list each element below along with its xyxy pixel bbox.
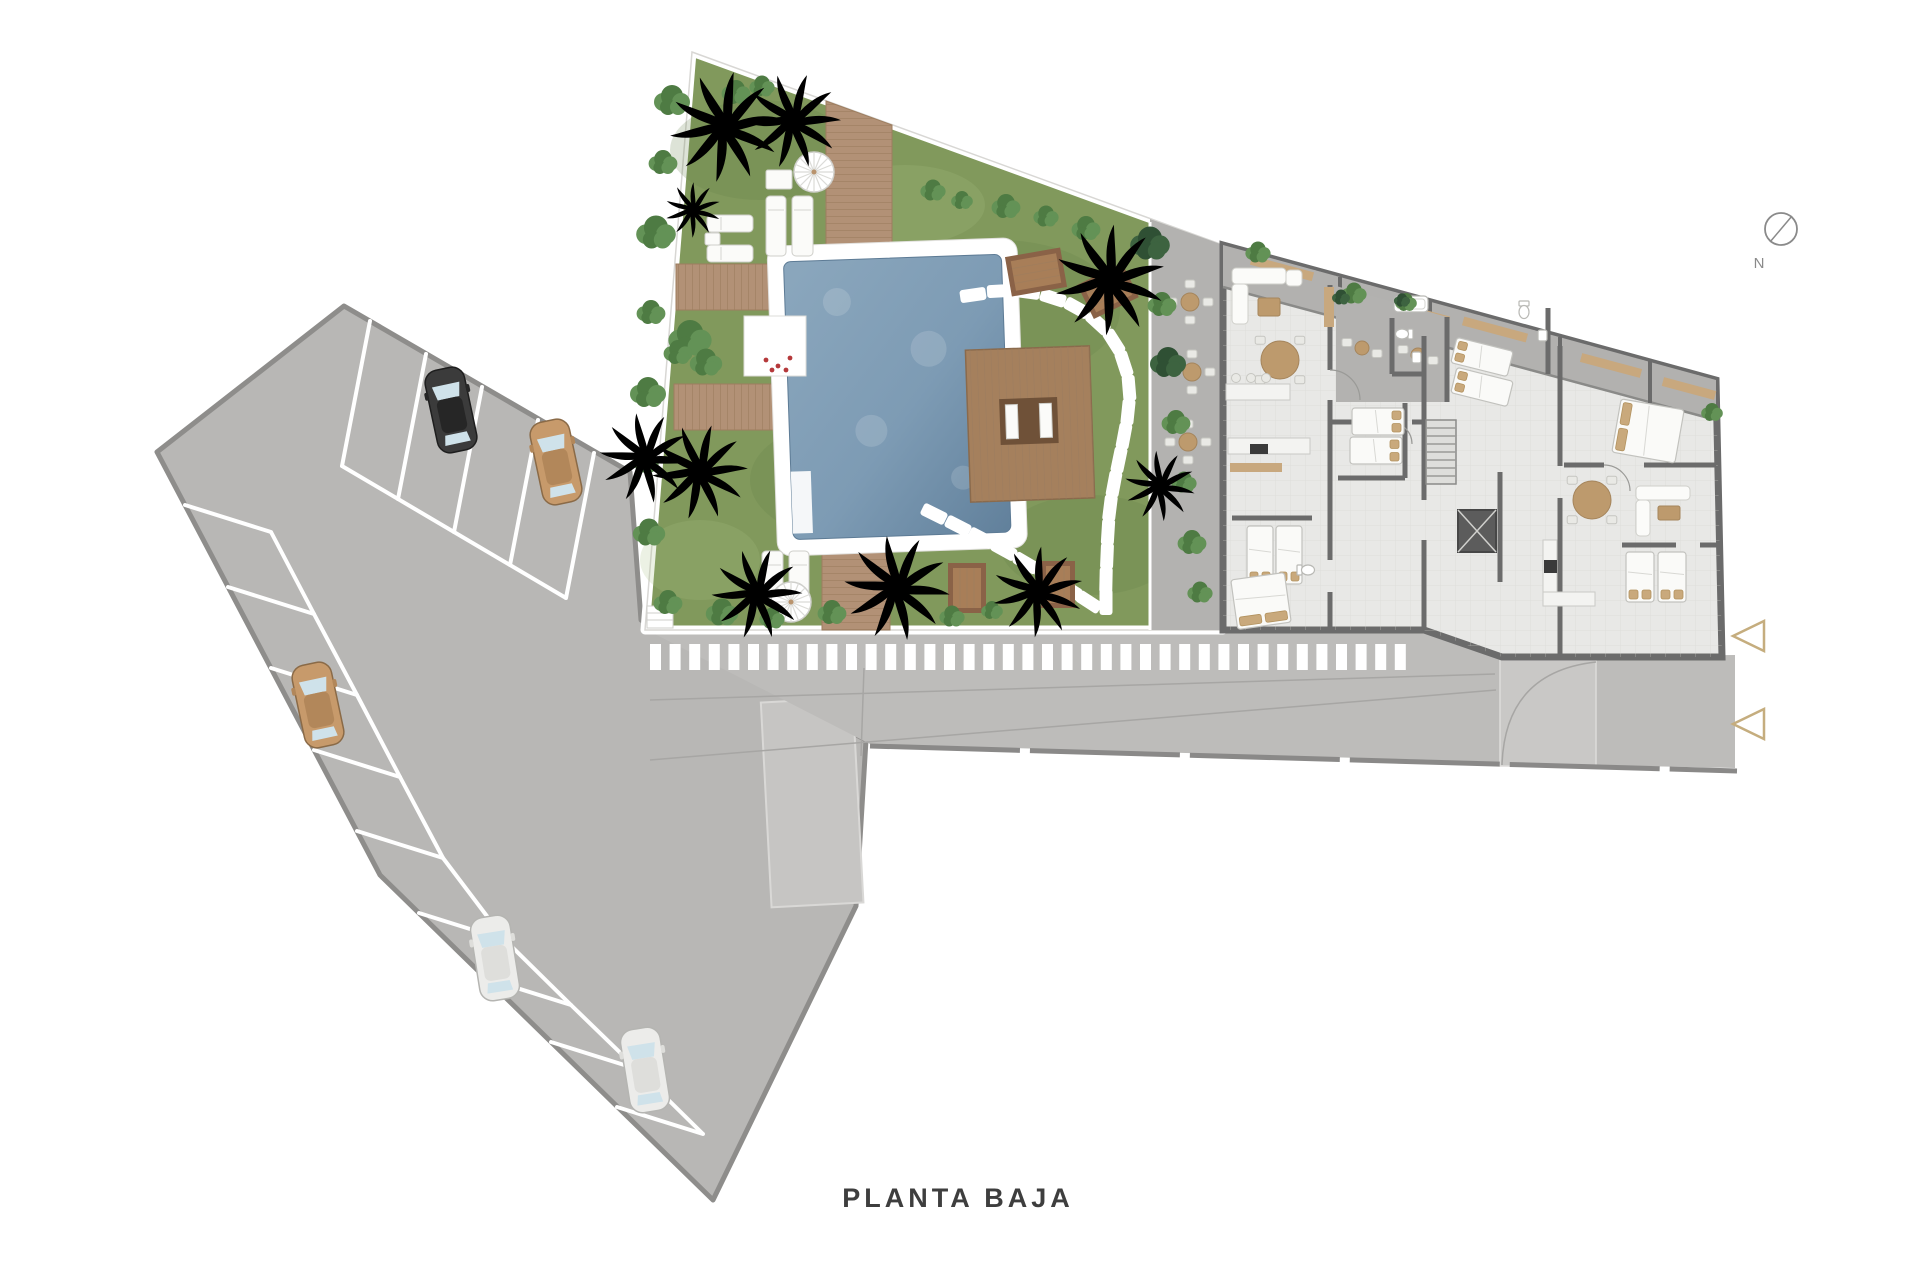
crosswalk-dash bbox=[1297, 644, 1308, 670]
crosswalk-dash bbox=[983, 644, 994, 670]
crosswalk-dash bbox=[1140, 644, 1151, 670]
shrub-tuft bbox=[1148, 242, 1166, 260]
chair bbox=[1183, 456, 1193, 464]
bed-pillow bbox=[1674, 590, 1683, 599]
crosswalk-dash bbox=[1395, 644, 1406, 670]
stepping-stone bbox=[987, 284, 1014, 298]
shrub-tuft bbox=[830, 611, 843, 624]
bed-pillow bbox=[1390, 440, 1399, 449]
toilet-bowl bbox=[1396, 329, 1409, 339]
shrub-tuft bbox=[1004, 205, 1017, 218]
planter-flower bbox=[788, 356, 793, 361]
shrub-tuft bbox=[991, 609, 1001, 619]
apartment-building bbox=[1223, 245, 1722, 657]
lounger-base bbox=[707, 245, 753, 262]
picnic-table bbox=[948, 563, 986, 613]
chair bbox=[1342, 339, 1352, 347]
toilet-bowl bbox=[1302, 565, 1315, 575]
bed-pillow bbox=[1457, 341, 1468, 351]
planter-flower bbox=[764, 358, 769, 363]
shrub-tuft bbox=[1084, 227, 1097, 240]
shrub-tuft bbox=[1257, 251, 1268, 262]
bed bbox=[1612, 399, 1684, 463]
sofa bbox=[1286, 270, 1302, 286]
sun-lounger bbox=[707, 245, 753, 262]
crosswalk-dash bbox=[905, 644, 916, 670]
compass-north-label: N bbox=[1754, 255, 1765, 272]
lounger-base bbox=[792, 196, 813, 256]
bed bbox=[1658, 552, 1686, 602]
crosswalk-dash bbox=[1375, 644, 1386, 670]
crosswalk-dash bbox=[1199, 644, 1210, 670]
kitchen-stool bbox=[1232, 374, 1241, 383]
floor-plan-canvas: N PLANTA BAJA bbox=[0, 0, 1920, 1280]
bed-pillow bbox=[1642, 590, 1651, 599]
chair bbox=[1428, 356, 1438, 364]
crosswalk-dash bbox=[1081, 644, 1092, 670]
kitchen-counter bbox=[1543, 592, 1595, 606]
chair bbox=[1255, 336, 1265, 344]
crosswalk-dash bbox=[1042, 644, 1053, 670]
entrance-arrows bbox=[1733, 621, 1764, 739]
chair bbox=[1187, 350, 1197, 358]
kitchen-appliance bbox=[1250, 444, 1268, 454]
parasol bbox=[794, 152, 834, 192]
crosswalk-dash bbox=[924, 644, 935, 670]
round-table bbox=[1573, 481, 1611, 519]
shrub-tuft bbox=[704, 361, 718, 375]
crosswalk-dash bbox=[964, 644, 975, 670]
entrance-arrow bbox=[1733, 709, 1764, 739]
stepping-stone bbox=[1100, 589, 1113, 615]
pergola-bench-right bbox=[1039, 403, 1052, 437]
chair bbox=[1607, 516, 1617, 524]
crosswalk-dash bbox=[1062, 644, 1073, 670]
crosswalk-dash bbox=[1160, 644, 1171, 670]
crosswalk-dash bbox=[1022, 644, 1033, 670]
shrub-tuft bbox=[661, 161, 674, 174]
shrub bbox=[636, 216, 676, 249]
shrub-tuft bbox=[649, 311, 662, 324]
sun-lounger bbox=[766, 196, 786, 256]
crosswalk-dash bbox=[1316, 644, 1327, 670]
bed bbox=[1352, 408, 1404, 435]
crosswalk-dash bbox=[650, 644, 661, 670]
chair bbox=[1203, 298, 1213, 306]
crosswalk-dash bbox=[846, 644, 857, 670]
crosswalk-dash bbox=[1238, 644, 1249, 670]
shrub-tuft bbox=[1401, 300, 1408, 307]
shrub-tuft bbox=[654, 231, 672, 249]
planter-flower bbox=[784, 368, 789, 373]
bed bbox=[1626, 552, 1654, 602]
bed bbox=[1231, 572, 1291, 629]
stepping-stone bbox=[1120, 398, 1136, 425]
shrub-tuft bbox=[646, 391, 662, 407]
crosswalk-dash bbox=[728, 644, 739, 670]
pergola bbox=[965, 346, 1094, 502]
sun-lounger bbox=[792, 196, 813, 256]
table-set bbox=[1567, 476, 1617, 524]
chair bbox=[1607, 476, 1617, 484]
sofa bbox=[1232, 268, 1286, 284]
sofa bbox=[1232, 284, 1248, 324]
wood-sideboard bbox=[1324, 287, 1334, 327]
bathroom-sink bbox=[1538, 330, 1547, 341]
crosswalk-dash bbox=[768, 644, 779, 670]
shrub-tuft bbox=[666, 601, 679, 614]
chair bbox=[1185, 280, 1195, 288]
site-plan-page: N PLANTA BAJA bbox=[0, 0, 1920, 1280]
bed-pillow bbox=[1661, 590, 1670, 599]
crosswalk-dash bbox=[1356, 644, 1367, 670]
bed-pillow bbox=[1392, 411, 1401, 420]
kitchen-stool bbox=[1247, 374, 1256, 383]
chair bbox=[1398, 346, 1408, 354]
stepping-stone bbox=[1101, 519, 1116, 546]
round-table bbox=[1355, 341, 1369, 355]
chair bbox=[1372, 349, 1382, 357]
crosswalk-dash bbox=[1218, 644, 1229, 670]
shrub-tuft bbox=[1199, 591, 1210, 602]
shrub-tuft bbox=[961, 199, 971, 209]
crosswalk-dash bbox=[709, 644, 720, 670]
shrub-tuft bbox=[647, 531, 661, 545]
sofa bbox=[1636, 486, 1690, 500]
pool-steps bbox=[791, 471, 813, 534]
kitchen-appliance bbox=[1544, 560, 1557, 573]
crosswalk-dash bbox=[1336, 644, 1347, 670]
chair bbox=[1295, 336, 1305, 344]
pergola-bench-left bbox=[1005, 404, 1018, 438]
wood-sideboard bbox=[1230, 463, 1282, 472]
parasol-glyph bbox=[794, 152, 834, 192]
plan-title: PLANTA BAJA bbox=[842, 1183, 1074, 1213]
bathroom-sink bbox=[1412, 352, 1421, 363]
compass-rose: N bbox=[1754, 213, 1797, 272]
side-table bbox=[705, 233, 720, 245]
kitchen-counter bbox=[1228, 438, 1310, 454]
stepping-stone bbox=[1121, 375, 1136, 402]
kitchen-counter bbox=[1226, 384, 1290, 400]
toilet-bowl bbox=[1519, 306, 1529, 319]
shrub-tuft bbox=[1340, 297, 1348, 305]
bed-pillow bbox=[1454, 383, 1465, 393]
chair bbox=[1295, 376, 1305, 384]
round-table bbox=[1181, 293, 1199, 311]
crosswalk-dash bbox=[944, 644, 955, 670]
bed bbox=[1350, 437, 1402, 464]
kitchen-stool bbox=[1262, 374, 1271, 383]
stepping-stone bbox=[1100, 543, 1114, 570]
crosswalk-dash bbox=[1179, 644, 1190, 670]
crosswalk-dash bbox=[1277, 644, 1288, 670]
chair bbox=[1201, 438, 1211, 446]
coffee-table bbox=[1258, 298, 1280, 316]
shrub-tuft bbox=[1174, 421, 1187, 434]
entrance-arrow bbox=[1733, 621, 1764, 651]
shrub-tuft bbox=[932, 189, 943, 200]
shrub bbox=[637, 300, 666, 324]
crosswalk-dash bbox=[787, 644, 798, 670]
chair bbox=[1187, 386, 1197, 394]
chair bbox=[1567, 516, 1577, 524]
side-table bbox=[766, 170, 792, 189]
crosswalk-dash bbox=[748, 644, 759, 670]
round-table bbox=[1179, 433, 1197, 451]
lounger-base bbox=[766, 196, 786, 256]
shrub-tuft bbox=[1160, 303, 1173, 316]
toilet bbox=[1519, 301, 1529, 319]
shrub-tuft bbox=[761, 85, 772, 96]
crosswalk-dash bbox=[1258, 644, 1269, 670]
bed-pillow bbox=[1457, 371, 1468, 381]
shrub bbox=[630, 377, 666, 407]
crosswalk-dash bbox=[866, 644, 877, 670]
bed-pillow bbox=[1454, 353, 1465, 363]
bed-pillow bbox=[1392, 424, 1401, 433]
toilet bbox=[1297, 565, 1315, 575]
chair bbox=[1185, 316, 1195, 324]
bed-pillow bbox=[1629, 590, 1638, 599]
crosswalk-dash bbox=[885, 644, 896, 670]
crosswalk-dash bbox=[1120, 644, 1131, 670]
bed-pillow bbox=[1390, 453, 1399, 462]
deck-top-planks bbox=[826, 101, 892, 252]
crosswalk-dash bbox=[1003, 644, 1014, 670]
planter-flower bbox=[770, 368, 775, 373]
crosswalk-dash bbox=[689, 644, 700, 670]
shrub-tuft bbox=[676, 351, 689, 364]
crosswalk-dash bbox=[807, 644, 818, 670]
chair bbox=[1205, 368, 1215, 376]
shrub-tuft bbox=[1353, 292, 1364, 303]
shrub-tuft bbox=[1045, 215, 1056, 226]
shrub-tuft bbox=[1190, 541, 1203, 554]
toilet bbox=[1396, 329, 1414, 339]
shrub-tuft bbox=[771, 617, 782, 628]
sofa bbox=[1636, 500, 1650, 536]
shrub-tuft bbox=[1166, 361, 1182, 377]
crosswalk-dash bbox=[1101, 644, 1112, 670]
crosswalk-dash bbox=[826, 644, 837, 670]
chair bbox=[1567, 476, 1577, 484]
shrub-tuft bbox=[951, 615, 962, 626]
chair bbox=[1165, 438, 1175, 446]
crosswalk-dash bbox=[670, 644, 681, 670]
shrub-tuft bbox=[1711, 411, 1721, 421]
planter-box bbox=[744, 316, 806, 376]
planter-flower bbox=[776, 364, 781, 369]
coffee-table bbox=[1658, 506, 1680, 520]
